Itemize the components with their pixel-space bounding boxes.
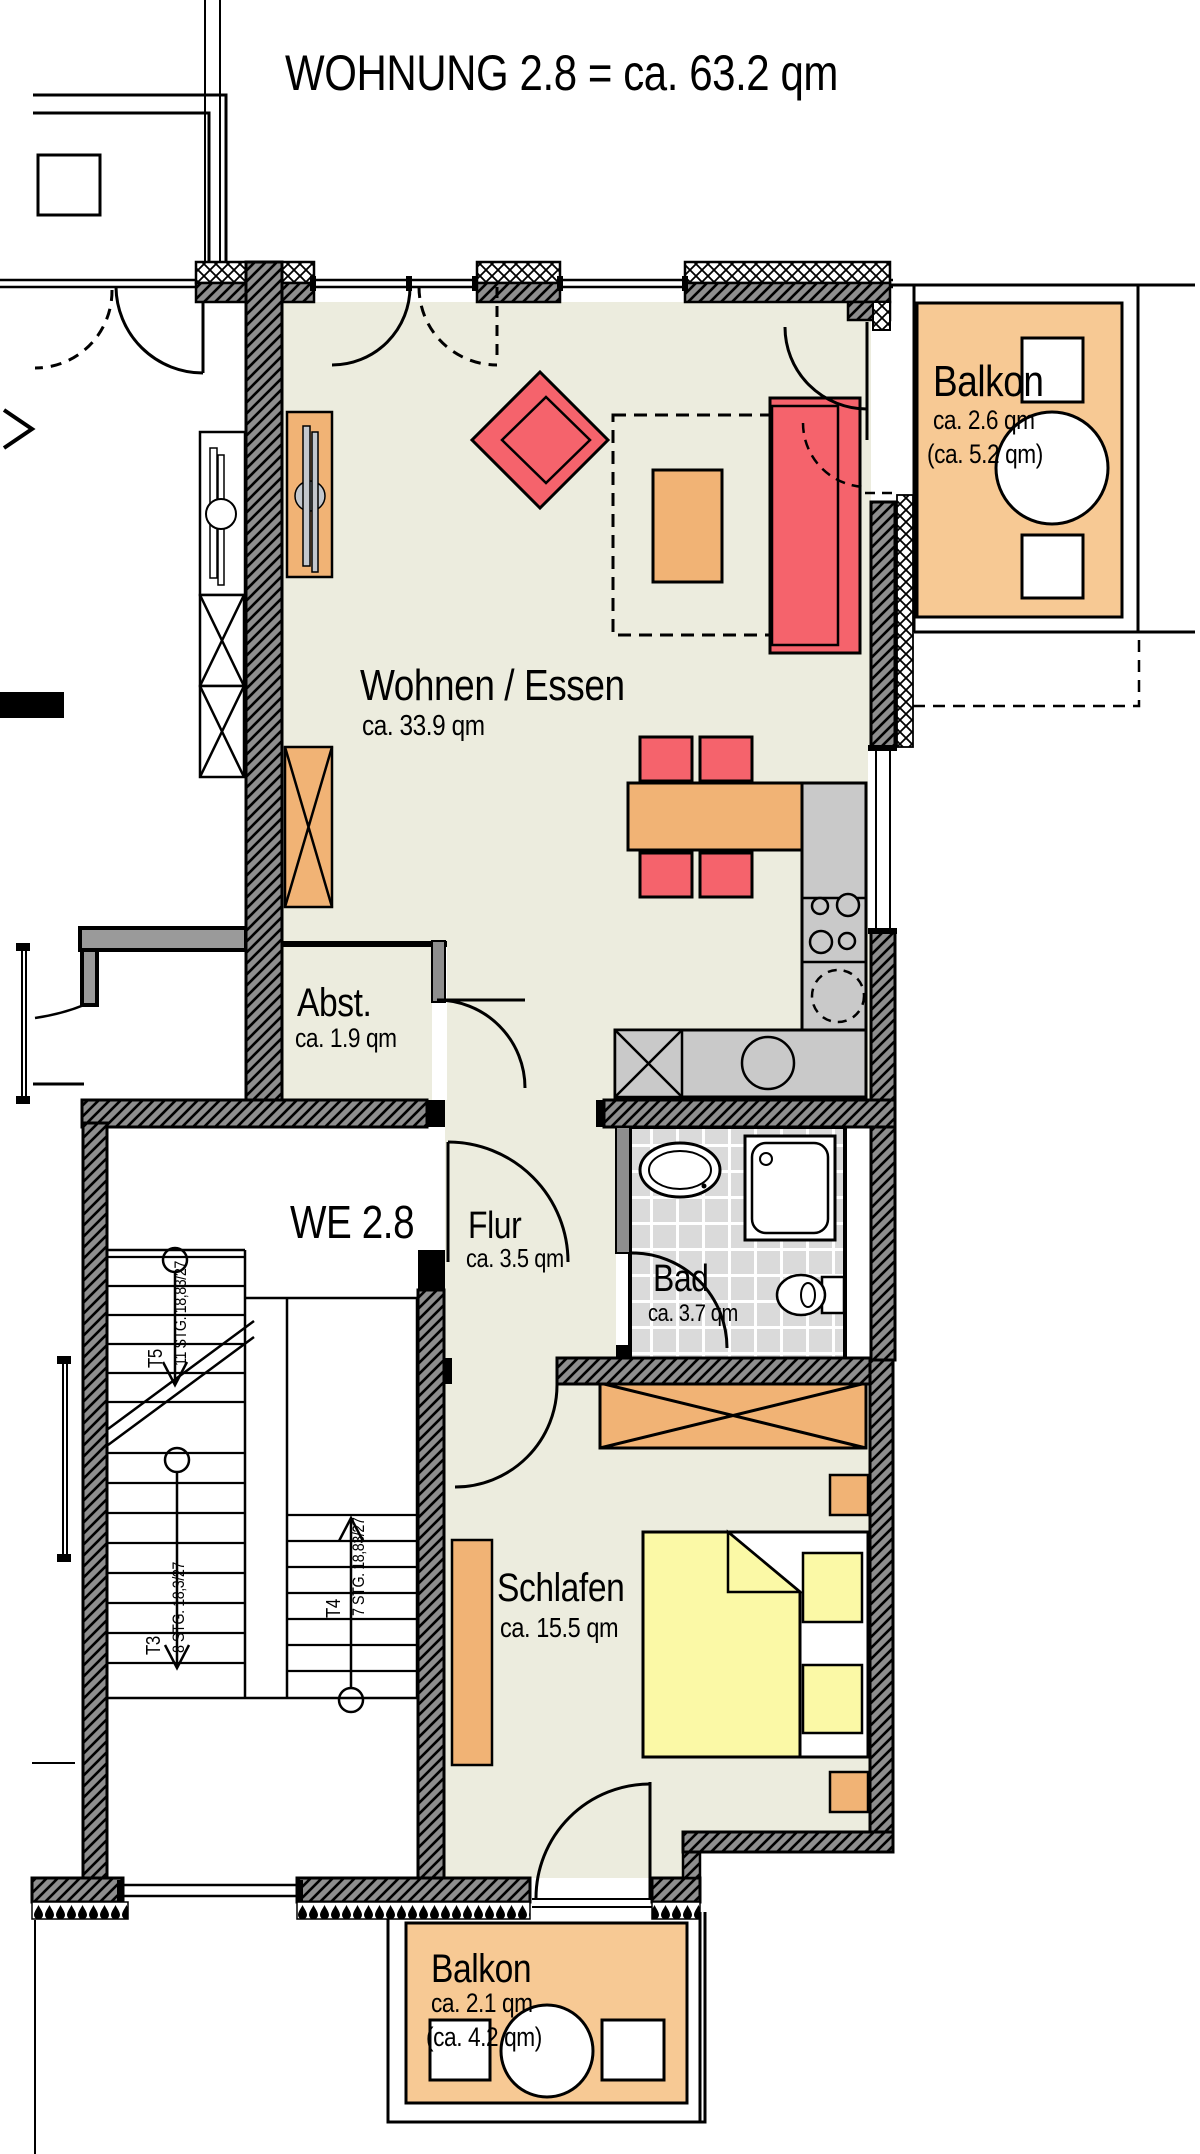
stairwell-window-cap-1 [57,1356,71,1364]
balkon-bottom-area-total: (ca. 4.2 qm) [426,2022,542,2052]
neighbor-wall-horizontal [80,928,246,950]
wall-stair-north-cap [427,1100,445,1127]
bath-sink-drain [702,1184,707,1189]
balcony-bottom-chair-2 [602,2020,664,2080]
shower-drain [760,1153,772,1165]
kitchen-window-cap-1 [868,745,897,751]
bedroom-door-gap-floor [452,1356,557,1384]
nightstand-2 [830,1772,868,1812]
wall-bad-west [616,1127,630,1253]
insulation-south-2 [297,1902,530,1919]
bed-pillow-2 [803,1665,862,1733]
wall-east-upper [871,502,895,747]
floorplan-page: WOHNUNG 2.8 = ca. 63.2 qm Balkon ca. 2.6… [0,0,1200,2154]
kitchen-window-cap-2 [868,928,897,934]
abst-label: Abst. [297,980,371,1024]
balkon-bottom-area: ca. 2.1 qm [431,1988,533,2018]
wall-abst-north [282,941,447,947]
bad-area: ca. 3.7 qm [648,1299,738,1326]
wall-bad-north-cap [596,1100,604,1127]
abst-area: ca. 1.9 qm [295,1023,397,1053]
tv-panel-2 [312,432,318,572]
balcony-top-chair-2 [1022,535,1083,598]
wall-south-2 [297,1878,530,1902]
wall-east-kitchen [871,932,895,1100]
balkon-top-label: Balkon [933,356,1043,406]
stair-south-window-cap-1 [117,1880,123,1902]
sofa [770,398,860,653]
neighbor-wall-vertical [82,950,97,1005]
neighbor-small-door-arc [35,1005,84,1018]
schlafen-area: ca. 15.5 qm [500,1613,618,1643]
balkon-top-area-total: (ca. 5.2 qm) [927,439,1043,469]
bed-pillow-1 [803,1553,862,1622]
wall-west-living [246,262,282,1100]
kitchen-sink [742,1037,794,1089]
insulation-south-3 [652,1902,700,1919]
tv-panel-1 [303,426,310,566]
wall-pier-2 [477,283,560,302]
neighbor-window-cap-1 [16,943,30,951]
neighbor-door-arc [116,287,203,373]
dining-table [628,783,802,850]
unit-label: WE 2.8 [290,1197,414,1248]
insulation-south-1 [32,1902,128,1919]
stair-t4-steps: 7 STG. 18,83/27 [350,1518,368,1616]
stair-t3-id: T3 [142,1636,165,1655]
balcony-top-extension-dashed [893,640,1139,706]
schlafen-label: Schlafen [497,1565,624,1609]
wall-bedroom-south-east [683,1832,893,1852]
wall-bedroom-west [418,1290,444,1878]
wall-east-bedroom [870,1360,893,1835]
wall-stair-north [82,1100,427,1127]
balkon-bottom-label: Balkon [431,1946,531,1990]
nightstand-1 [830,1475,868,1515]
stair-walklines [163,1248,363,1712]
wohnen-label: Wohnen / Essen [360,660,625,710]
stair-t5-id: T5 [144,1349,167,1368]
wall-pier-3 [685,283,890,302]
wall-east-insulation [897,495,913,747]
wall-bedroom-north [557,1358,870,1384]
wall-stairwell-west [83,1123,107,1878]
neighbor-window-cap-2 [16,1096,30,1104]
wall-east-bad [871,1100,895,1360]
stair-t4-id: T4 [322,1599,345,1618]
neighbor-door-arc-dashed [35,290,112,368]
wall-insulation-step [873,302,890,330]
plan-title: WOHNUNG 2.8 = ca. 63.2 qm [285,45,838,101]
stair-t3-steps: 8 STG. 18,3/27 [170,1562,188,1653]
neighbor-balcony-chair [38,155,100,215]
flur-area: ca. 3.5 qm [466,1244,564,1273]
neighbor-wardrobe [200,595,244,777]
wohnen-area: ca. 33.9 qm [362,709,485,741]
stair-t5-steps: 11 STG. 18,83/27 [172,1261,190,1366]
neighbor-wall-band [0,692,64,718]
flur-label: Flur [468,1204,522,1246]
neighbor-sideboard-knob [206,499,236,529]
kitchen-window-opening [868,747,897,932]
coffee-table [653,470,722,582]
section-marker-chevron [4,410,32,448]
wall-bad-north [604,1100,895,1127]
balkon-top-area: ca. 2.6 qm [933,405,1035,435]
wc-bowl-inner [801,1283,815,1307]
wall-south-step [683,1852,700,1878]
wall-abst-east-jamb [432,941,445,1002]
stair-south-window-cap-2 [297,1880,303,1902]
wall-entrance-stub [418,1250,445,1290]
wall-south-3 [652,1878,700,1902]
wall-insulation-pier-2 [477,262,560,283]
wall-insulation-pier-3 [685,262,890,283]
floorplan-drawing: WOHNUNG 2.8 = ca. 63.2 qm Balkon ca. 2.6… [0,0,1200,2154]
wall-south-1 [32,1878,123,1902]
stairwell-window-cap-2 [57,1554,71,1562]
bedroom-sideboard [452,1540,492,1765]
bath-sink-basin [649,1151,711,1189]
bad-label: Bad [653,1257,709,1299]
